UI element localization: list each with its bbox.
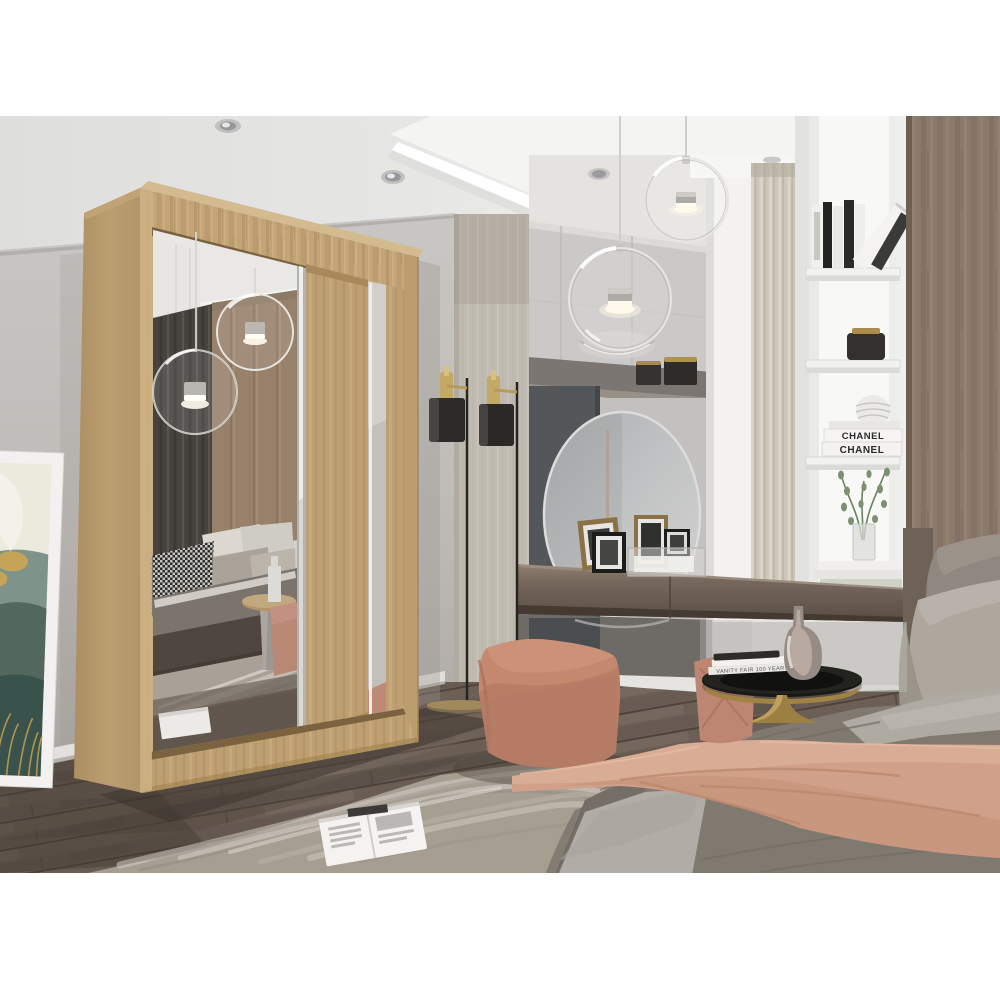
svg-text:CHANEL: CHANEL (840, 445, 885, 456)
svg-text:CHANEL: CHANEL (842, 431, 885, 442)
